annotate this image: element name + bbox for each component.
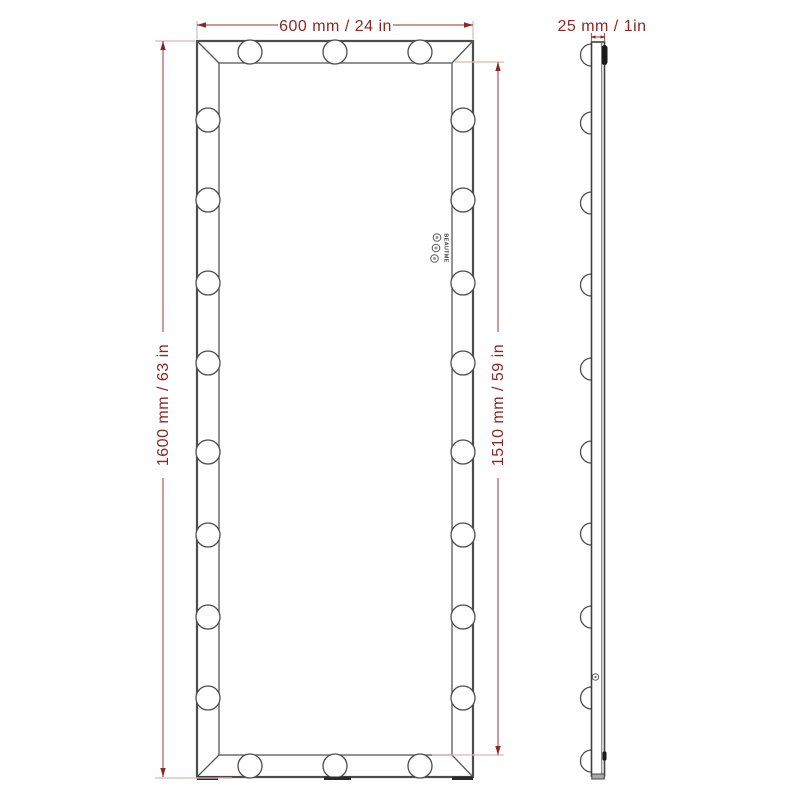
side-light-bulb — [581, 358, 592, 380]
light-bulb — [196, 188, 220, 212]
side-light-bulb — [581, 44, 592, 66]
height-dimension-label: 1600 mm / 63 in — [155, 344, 172, 466]
inner-height-dimension-label: 1510 mm / 59 in — [490, 344, 507, 466]
light-bulb — [451, 271, 475, 295]
side-bulbs — [581, 44, 592, 772]
depth-dimension-label: 25 mm / 1in — [557, 18, 646, 35]
arrowhead-left — [197, 22, 206, 27]
brand-logo-text: BEAUTME — [443, 233, 449, 262]
hanging-bracket — [602, 45, 608, 65]
light-bulb — [451, 686, 475, 710]
side-light-bulb — [581, 687, 592, 709]
light-bulb — [451, 523, 475, 547]
front-view: BEAUTME — [196, 40, 475, 780]
light-bulb — [323, 40, 347, 64]
foot-center — [324, 777, 351, 781]
light-bulb — [196, 271, 220, 295]
light-bulb — [451, 188, 475, 212]
light-bulb — [196, 440, 220, 464]
light-bulb — [451, 351, 475, 375]
light-bulb — [196, 605, 220, 629]
mirror-inner-frame — [219, 63, 452, 755]
light-bulb — [408, 754, 432, 778]
arrowhead-up — [160, 41, 165, 50]
control-button-dot — [433, 257, 436, 260]
side-light-bulb — [581, 112, 592, 134]
side-light-bulb — [581, 274, 592, 296]
foot-right — [452, 777, 473, 781]
control-button-dot — [436, 236, 439, 239]
side-light-bulb — [581, 441, 592, 463]
light-bulb — [451, 108, 475, 132]
power-screw-dot — [595, 676, 597, 678]
light-bulb — [238, 754, 262, 778]
mirror-dimension-diagram: BEAUTME 600 mm / 24 in 1600 mm / 63 in — [0, 0, 800, 800]
light-bulb — [196, 686, 220, 710]
side-light-bulb — [581, 750, 592, 772]
light-bulb — [451, 440, 475, 464]
light-bulb — [238, 40, 262, 64]
bottom-tab — [603, 752, 607, 761]
light-bulb — [408, 40, 432, 64]
light-bulb — [196, 523, 220, 547]
light-bulb — [451, 605, 475, 629]
arrowhead-down — [495, 746, 500, 755]
light-bulb — [323, 754, 347, 778]
arrowhead-right — [464, 22, 473, 27]
side-light-bulb — [581, 192, 592, 214]
light-bulb — [196, 108, 220, 132]
control-button-dot — [435, 247, 438, 250]
side-profile-bar — [592, 42, 605, 776]
arrowhead-down — [160, 768, 165, 777]
side-light-bulb — [581, 606, 592, 628]
bottom-cap — [592, 774, 605, 779]
side-light-bulb — [581, 523, 592, 545]
width-dimension-label: 600 mm / 24 in — [279, 18, 392, 35]
arrowhead-up — [495, 62, 500, 71]
light-bulb — [196, 351, 220, 375]
diagram-canvas: BEAUTME 600 mm / 24 in 1600 mm / 63 in — [0, 0, 800, 800]
side-view — [581, 42, 608, 779]
